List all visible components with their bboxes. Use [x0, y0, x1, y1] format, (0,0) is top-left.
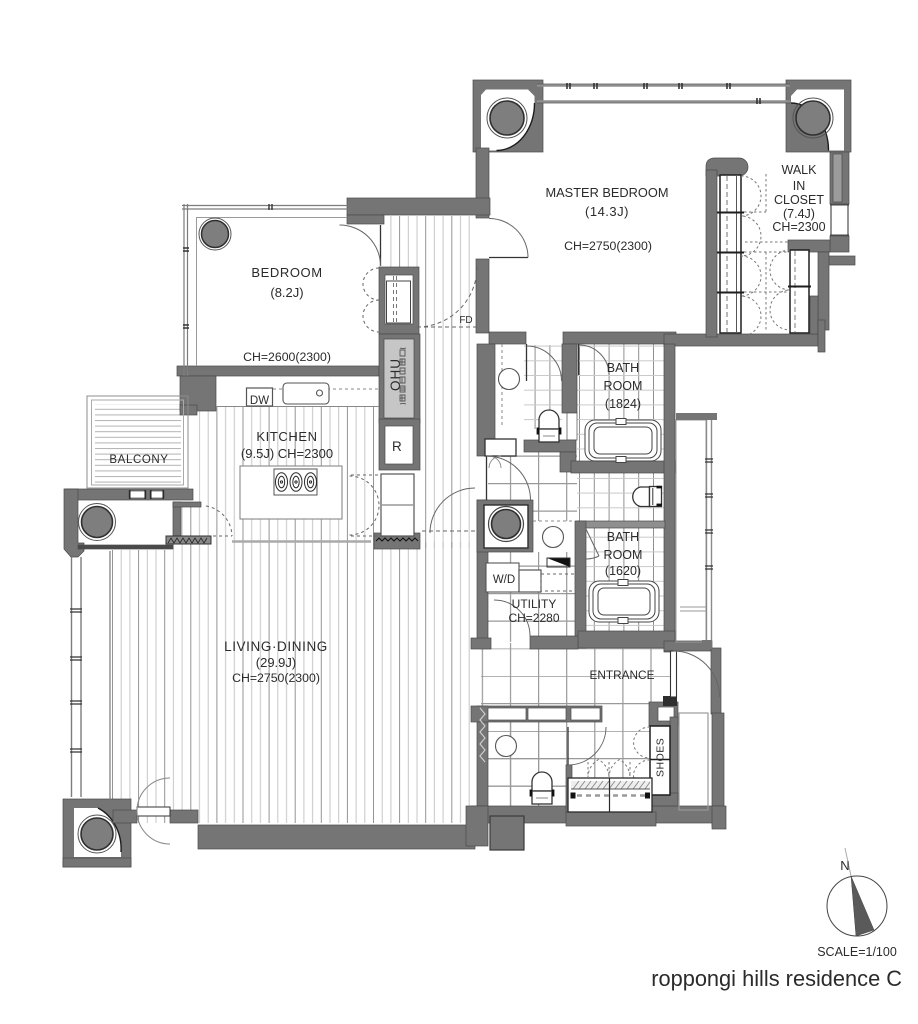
svg-text:(8.2J): (8.2J) [270, 285, 303, 300]
svg-text:roppongi hills residence C: roppongi hills residence C [651, 966, 902, 991]
svg-text:SCALE=1/100: SCALE=1/100 [817, 945, 897, 959]
svg-text:FD: FD [459, 315, 472, 326]
svg-text:ROOM: ROOM [604, 548, 643, 562]
svg-text:R: R [392, 439, 402, 454]
svg-text:CH=2750(2300): CH=2750(2300) [232, 671, 320, 685]
svg-text:DW: DW [250, 395, 269, 407]
svg-text:BATH: BATH [607, 361, 639, 375]
svg-text:WALK: WALK [782, 163, 818, 177]
svg-text:CH=2300: CH=2300 [772, 220, 825, 234]
svg-text:(7.4J): (7.4J) [783, 207, 815, 221]
svg-text:(1620): (1620) [605, 564, 641, 578]
svg-text:UTILITY: UTILITY [512, 597, 557, 611]
svg-text:LIVING·DINING: LIVING·DINING [224, 639, 328, 654]
svg-text:(29.9J): (29.9J) [256, 655, 296, 670]
svg-text:(1824): (1824) [605, 397, 641, 411]
svg-text:ENTRANCE: ENTRANCE [590, 668, 655, 682]
svg-text:IN: IN [793, 179, 806, 193]
svg-text:CLOSET: CLOSET [774, 193, 824, 207]
svg-text:BATH: BATH [607, 530, 639, 544]
svg-text:(14.3J): (14.3J) [585, 204, 629, 219]
svg-text:CH=2280: CH=2280 [508, 611, 559, 625]
svg-text:KITCHEN: KITCHEN [256, 429, 317, 444]
svg-text:SHOES: SHOES [655, 738, 667, 777]
svg-text:MASTER BEDROOM: MASTER BEDROOM [545, 185, 668, 200]
svg-text:BALCONY: BALCONY [109, 454, 168, 466]
svg-text:CH=2750(2300): CH=2750(2300) [564, 239, 652, 253]
svg-text:(9.5J) CH=2300: (9.5J) CH=2300 [241, 446, 333, 461]
svg-text:CH=2600(2300): CH=2600(2300) [243, 350, 331, 364]
svg-text:N: N [840, 858, 849, 873]
svg-text:W/D: W/D [493, 574, 515, 586]
svg-text:BEDROOM: BEDROOM [251, 265, 322, 280]
svg-text:ROOM: ROOM [604, 379, 643, 393]
